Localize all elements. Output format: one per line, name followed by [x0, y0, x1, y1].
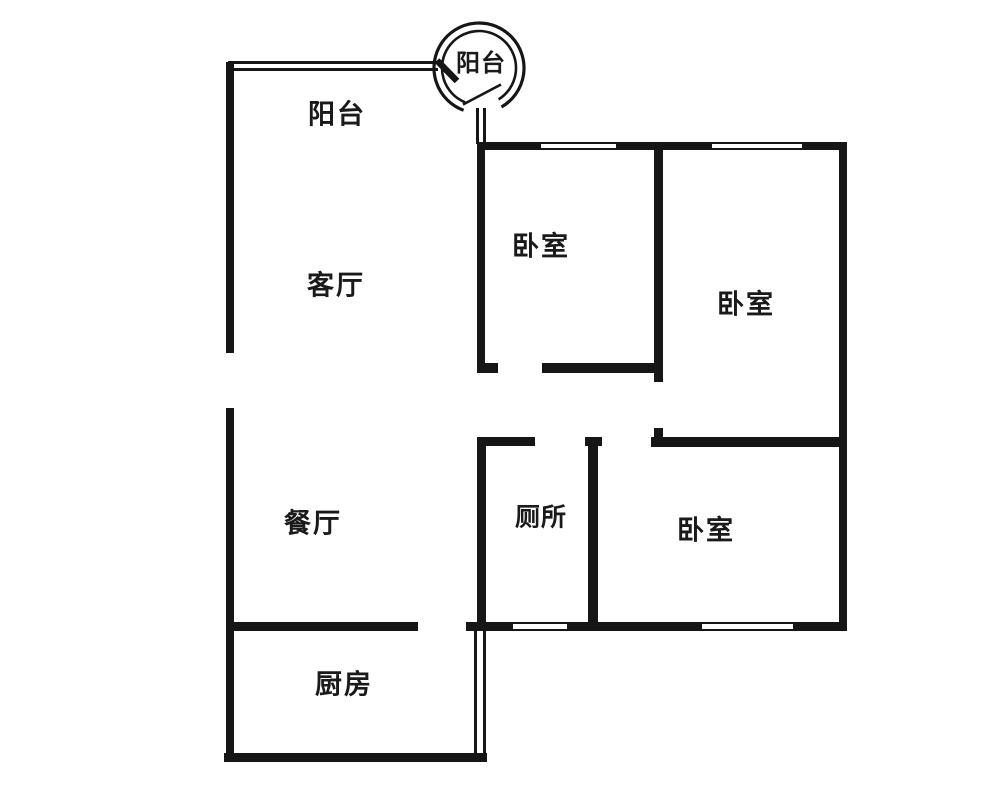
room-label-bedroom-1: 卧室	[512, 234, 570, 261]
window-bedroom3-line1	[702, 622, 793, 624]
window-toilet-line1	[513, 622, 567, 624]
windows	[228, 61, 802, 753]
floor-plan-drawing	[0, 0, 1000, 807]
room-label-living-room: 客厅	[307, 273, 365, 300]
wall-kitchen-bottom	[224, 753, 487, 762]
window-toilet-line2	[513, 629, 567, 631]
wall-right	[839, 142, 847, 631]
wall-bedroom1-left	[477, 142, 485, 372]
floor-plan: 阳台 阳台 客厅 卧室 卧室 餐厅 厕所 卧室 厨房	[0, 0, 1000, 807]
wall-bottom-seg3	[793, 622, 847, 631]
window-bedroom1-line2	[541, 148, 616, 150]
wall-dining-bottom	[226, 622, 418, 631]
round-balcony-door-line	[463, 85, 501, 105]
window-kitchen-line1	[474, 630, 477, 753]
wall-bottom-seg2	[567, 622, 702, 631]
balcony-neck-line2	[483, 108, 486, 144]
room-label-bedroom-3: 卧室	[677, 518, 735, 545]
wall-toilet-right	[588, 437, 598, 627]
room-label-kitchen: 厨房	[315, 672, 373, 699]
wall-left-lower	[226, 408, 234, 762]
wall-top-seg1	[477, 142, 541, 150]
wall-left-upper	[226, 62, 234, 353]
wall-bedrooms-divider	[654, 142, 663, 382]
wall-bedroom1-foot	[477, 363, 498, 373]
window-bedroom3-line2	[702, 629, 793, 631]
wall-bedroom1-bottom	[542, 363, 662, 373]
wall-toilet-top	[477, 437, 535, 446]
room-label-dining-room: 餐厅	[284, 511, 342, 538]
wall-toilet-left	[477, 437, 486, 630]
wall-bottom-seg1	[466, 622, 513, 631]
room-label-balcony: 阳台	[308, 102, 366, 129]
window-kitchen-line2	[483, 630, 486, 753]
round-balcony-joint-tick	[437, 61, 457, 82]
balcony-railing-line2	[228, 68, 438, 71]
room-label-toilet: 厕所	[515, 505, 567, 530]
wall-bedroom3-top	[651, 437, 843, 447]
window-bedroom1-line1	[541, 142, 616, 144]
balcony-railing-line1	[228, 61, 438, 64]
walls	[224, 62, 847, 762]
balcony-neck-line1	[476, 108, 479, 144]
wall-top-seg2	[616, 142, 712, 150]
window-bedroom2-line1	[712, 142, 802, 144]
room-label-round-balcony: 阳台	[456, 51, 506, 75]
room-label-bedroom-2: 卧室	[717, 292, 775, 319]
window-bedroom2-line2	[712, 148, 802, 150]
